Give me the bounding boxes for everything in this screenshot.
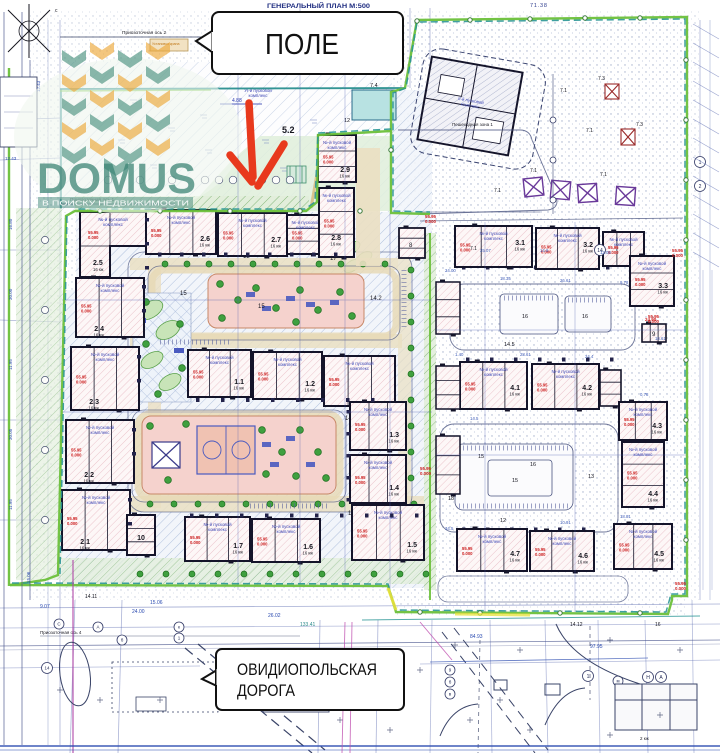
svg-text:16 кж: 16 кж [407, 549, 418, 554]
svg-text:16: 16 [530, 462, 536, 468]
svg-text:16 кж: 16 кж [583, 249, 594, 254]
svg-text:10: 10 [137, 535, 145, 542]
svg-text:0.000: 0.000 [258, 377, 269, 382]
svg-text:0.000: 0.000 [76, 380, 87, 385]
svg-text:комплекс: комплекс [101, 288, 121, 293]
svg-text:15: 15 [180, 291, 187, 297]
svg-text:к: к [178, 625, 180, 630]
svg-text:14.12: 14.12 [570, 622, 583, 628]
svg-text:16 кж: 16 кж [658, 290, 669, 295]
svg-text:12.43: 12.43 [5, 156, 17, 161]
svg-text:16 кж: 16 кж [80, 546, 91, 551]
svg-text:14.5: 14.5 [504, 342, 515, 348]
svg-text:ОВИДИОПОЛЬСКАЯ: ОВИДИОПОЛЬСКАЯ [237, 660, 377, 679]
svg-text:комплекс: комплекс [379, 515, 399, 520]
svg-text:30.00: 30.00 [8, 288, 13, 300]
svg-text:15.06: 15.06 [26, 571, 31, 583]
svg-text:0.000: 0.000 [292, 236, 303, 241]
svg-text:Приозоточная ось 2: Приозоточная ось 2 [122, 30, 166, 36]
svg-text:15: 15 [258, 304, 265, 310]
svg-text:12: 12 [500, 518, 506, 524]
svg-text:0.000: 0.000 [71, 453, 82, 458]
svg-text:0.000: 0.000 [190, 540, 201, 545]
svg-text:16 кж: 16 кж [582, 392, 593, 397]
svg-text:1: 1 [587, 674, 590, 680]
svg-text:30.05: 30.05 [8, 428, 13, 440]
svg-text:0.000: 0.000 [648, 319, 660, 324]
svg-text:18.81: 18.81 [620, 514, 631, 519]
svg-text:комплекс: комплекс [296, 225, 316, 230]
svg-text:7.4: 7.4 [370, 83, 378, 89]
svg-text:м: м [616, 679, 619, 684]
svg-text:16 кж: 16 кж [652, 430, 663, 435]
svg-text:комплекс: комплекс [634, 412, 654, 417]
svg-text:0.000: 0.000 [329, 382, 340, 387]
svg-text:5.2: 5.2 [282, 125, 295, 135]
svg-text:комплекс: комплекс [484, 236, 504, 241]
svg-text:0.000: 0.000 [357, 534, 368, 539]
svg-text:0.000: 0.000 [627, 476, 638, 481]
svg-text:16 кж: 16 кж [515, 247, 526, 252]
svg-text:16: 16 [522, 314, 528, 320]
svg-text:16.61: 16.61 [655, 336, 666, 341]
svg-text:комплекс: комплекс [328, 145, 348, 150]
svg-text:0.000: 0.000 [672, 253, 684, 258]
svg-text:0.000: 0.000 [624, 422, 635, 427]
svg-text:DOMUS: DOMUS [37, 155, 196, 203]
svg-text:16 кж: 16 кж [648, 498, 659, 503]
svg-text:84.93: 84.93 [470, 634, 483, 640]
svg-text:16 кж: 16 кж [510, 392, 521, 397]
svg-text:комплекс: комплекс [643, 266, 663, 271]
svg-text:Пешеходная зона 1: Пешеходная зона 1 [452, 122, 493, 127]
svg-text:16: 16 [655, 622, 661, 628]
svg-text:0.000: 0.000 [193, 375, 204, 380]
svg-text:ДОРОГА: ДОРОГА [237, 681, 296, 700]
svg-text:комплекс: комплекс [634, 534, 654, 539]
svg-text:15.06: 15.06 [150, 600, 163, 606]
svg-text:16 кж: 16 кж [84, 479, 95, 484]
svg-text:0.000: 0.000 [323, 160, 334, 165]
svg-text:26.61: 26.61 [560, 278, 571, 283]
svg-text:16: 16 [582, 314, 588, 320]
svg-text:комплекс: комплекс [91, 430, 111, 435]
svg-text:7.3: 7.3 [636, 122, 643, 128]
svg-text:0.78: 0.78 [640, 392, 649, 397]
svg-text:16 кж: 16 кж [200, 243, 211, 248]
svg-text:комплекс: комплекс [243, 223, 263, 228]
svg-text:7.1: 7.1 [586, 128, 593, 134]
svg-text:0.000: 0.000 [619, 548, 630, 553]
svg-text:0.000: 0.000 [675, 586, 687, 591]
svg-text:комплекс: комплекс [277, 529, 297, 534]
svg-text:В ПОИСКУ НЕДВИЖИМОСТИ: В ПОИСКУ НЕДВИЖИМОСТИ [42, 199, 189, 208]
svg-text:16 кж: 16 кж [303, 551, 314, 556]
svg-text:16 кж: 16 кж [93, 267, 104, 272]
svg-text:комплекс: комплекс [103, 222, 124, 227]
svg-text:комплекс: комплекс [327, 198, 347, 203]
svg-text:14: 14 [44, 666, 50, 671]
svg-text:комплекс: комплекс [553, 541, 573, 546]
svg-text:комплекс: комплекс [172, 220, 192, 225]
svg-text:комплекс: комплекс [96, 357, 116, 362]
svg-text:7.1: 7.1 [560, 88, 567, 94]
svg-text:комплекс: комплекс [278, 362, 298, 367]
svg-text:11.95: 11.95 [8, 359, 13, 370]
svg-text:б: б [121, 638, 124, 643]
svg-text:комплекс: комплекс [483, 539, 503, 544]
svg-text:комплекс: комплекс [210, 360, 230, 365]
svg-text:ПОЛЕ: ПОЛЕ [265, 29, 339, 61]
svg-text:15: 15 [512, 478, 518, 484]
svg-text:16 кж: 16 кж [305, 388, 316, 393]
svg-text:16 кж: 16 кж [89, 406, 100, 411]
svg-text:4.88: 4.88 [232, 98, 242, 104]
svg-text:7.1: 7.1 [530, 168, 537, 174]
svg-text:24.4: 24.4 [585, 354, 594, 359]
svg-text:0.000: 0.000 [465, 387, 476, 392]
svg-text:0.000: 0.000 [81, 309, 92, 314]
svg-text:10.91: 10.91 [560, 520, 571, 525]
svg-text:16 кж: 16 кж [654, 558, 665, 563]
svg-text:комплекс: комплекс [634, 452, 654, 457]
svg-text:13: 13 [588, 474, 594, 480]
svg-text:24.00: 24.00 [132, 609, 145, 615]
svg-text:26.02: 26.02 [268, 613, 281, 619]
svg-text:2: 2 [699, 184, 702, 190]
svg-text:16 кж: 16 кж [271, 244, 282, 249]
svg-text:16 кж: 16 кж [234, 386, 245, 391]
svg-text:7.3: 7.3 [598, 76, 605, 82]
svg-text:0.000: 0.000 [223, 236, 234, 241]
svg-text:34.5: 34.5 [445, 526, 454, 531]
svg-text:0.000: 0.000 [635, 282, 646, 287]
svg-text:б: б [449, 680, 452, 685]
svg-text:0.000: 0.000 [151, 233, 162, 238]
svg-text:7.1: 7.1 [494, 188, 501, 194]
svg-text:А: А [96, 625, 99, 630]
svg-text:14.5: 14.5 [470, 416, 479, 421]
svg-text:97.95: 97.95 [590, 644, 603, 650]
svg-text:9.78: 9.78 [620, 280, 629, 285]
svg-text:25.07: 25.07 [480, 248, 491, 253]
svg-text:комплекс: комплекс [208, 527, 228, 532]
svg-text:0.000: 0.000 [355, 427, 366, 432]
svg-text:18: 18 [448, 496, 454, 502]
svg-text:0.000: 0.000 [420, 471, 432, 476]
svg-text:комплекс: комплекс [87, 500, 107, 505]
svg-text:2 кж: 2 кж [640, 736, 649, 741]
svg-text:0.000: 0.000 [257, 542, 268, 547]
svg-text:28.61: 28.61 [520, 352, 531, 357]
svg-text:ГЕНЕРАЛЬНЫЙ ПЛАН М:500: ГЕНЕРАЛЬНЫЙ ПЛАН М:500 [267, 1, 370, 10]
svg-text:0.000: 0.000 [324, 224, 335, 229]
svg-text:9.07: 9.07 [40, 604, 50, 610]
svg-text:комплекс: комплекс [484, 372, 504, 377]
svg-text:12.08: 12.08 [600, 250, 611, 255]
svg-text:0.000: 0.000 [67, 521, 78, 526]
svg-text:24.00: 24.00 [445, 268, 456, 273]
svg-text:2.5: 2.5 [93, 260, 103, 267]
svg-text:71.38: 71.38 [530, 3, 548, 9]
svg-text:1.40: 1.40 [455, 352, 464, 357]
svg-text:0.000: 0.000 [537, 388, 548, 393]
svg-text:18.35: 18.35 [500, 276, 511, 281]
svg-text:комплекс: комплекс [350, 366, 370, 371]
svg-text:0.000: 0.000 [535, 552, 546, 557]
svg-text:0.000: 0.000 [425, 219, 437, 224]
svg-text:11.95: 11.95 [8, 499, 13, 510]
svg-text:133.41: 133.41 [300, 622, 316, 628]
svg-text:16.80: 16.80 [8, 218, 13, 230]
svg-text:комплекс: комплекс [369, 412, 389, 417]
svg-text:16 кж: 16 кж [578, 560, 589, 565]
svg-text:14.2: 14.2 [370, 296, 382, 302]
svg-text:0.000: 0.000 [88, 235, 99, 240]
svg-text:Н: Н [646, 675, 650, 681]
svg-text:14.6: 14.6 [540, 248, 549, 253]
svg-text:16 кж: 16 кж [94, 333, 105, 338]
svg-text:7.1: 7.1 [600, 172, 607, 178]
svg-text:14.11: 14.11 [85, 594, 97, 600]
svg-text:комплекс: комплекс [249, 93, 269, 98]
svg-text:комплекс: комплекс [369, 465, 389, 470]
svg-text:16 кж: 16 кж [331, 242, 342, 247]
svg-text:комплекс: комплекс [556, 374, 576, 379]
svg-text:0.000: 0.000 [355, 480, 366, 485]
svg-text:7.1: 7.1 [470, 246, 477, 252]
svg-text:16 кж: 16 кж [510, 558, 521, 563]
svg-text:Приозоточная ось 4: Приозоточная ось 4 [40, 630, 82, 635]
svg-text:0.000: 0.000 [462, 551, 473, 556]
